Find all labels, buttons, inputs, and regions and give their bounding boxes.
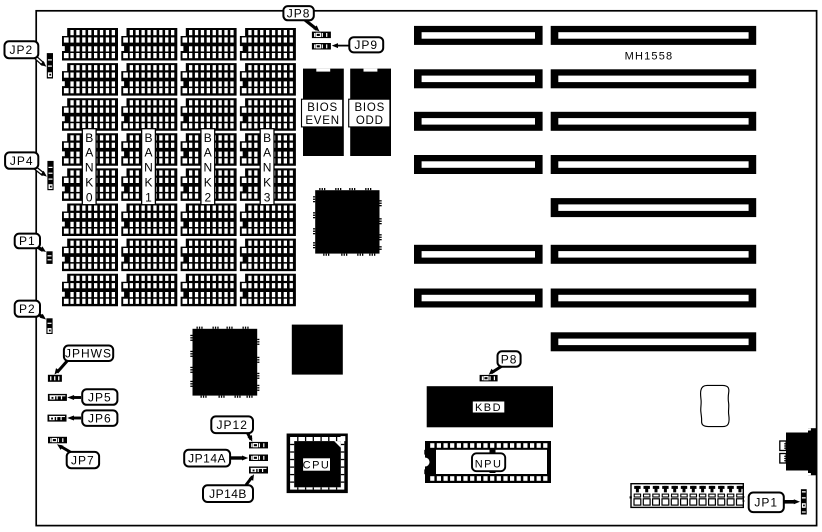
svg-text:N: N: [144, 161, 153, 175]
svg-text:A: A: [144, 146, 152, 160]
svg-text:JP14B: JP14B: [209, 487, 247, 501]
svg-text:JP4: JP4: [10, 154, 34, 168]
svg-text:JP6: JP6: [88, 411, 112, 425]
svg-text:B: B: [263, 131, 271, 145]
svg-text:EVEN: EVEN: [305, 115, 340, 127]
svg-text:ODD: ODD: [356, 115, 384, 127]
svg-text:B: B: [204, 131, 212, 145]
svg-text:0: 0: [86, 190, 93, 204]
svg-text:A: A: [263, 146, 271, 160]
svg-text:1: 1: [145, 190, 152, 204]
svg-text:N: N: [85, 161, 94, 175]
svg-text:KBD: KBD: [475, 402, 502, 414]
svg-text:JP8: JP8: [287, 7, 311, 21]
svg-text:JPHWS: JPHWS: [65, 347, 112, 361]
svg-text:K: K: [263, 176, 271, 190]
svg-text:P8: P8: [501, 352, 518, 366]
svg-text:BIOS: BIOS: [354, 102, 385, 114]
svg-text:A: A: [204, 146, 212, 160]
svg-text:B: B: [144, 131, 152, 145]
svg-text:CPU: CPU: [303, 459, 331, 471]
svg-text:JP5: JP5: [88, 390, 112, 404]
svg-text:MH1558: MH1558: [625, 50, 674, 62]
svg-text:N: N: [263, 161, 272, 175]
svg-text:JP14A: JP14A: [188, 452, 226, 466]
svg-text:JP2: JP2: [10, 43, 34, 57]
svg-text:NPU: NPU: [475, 458, 503, 470]
svg-text:JP9: JP9: [354, 38, 378, 52]
svg-text:B: B: [85, 131, 93, 145]
svg-text:K: K: [144, 176, 152, 190]
svg-text:JP12: JP12: [217, 418, 248, 432]
svg-text:P1: P1: [19, 234, 36, 248]
svg-text:JP1: JP1: [754, 496, 778, 510]
svg-text:N: N: [203, 161, 212, 175]
svg-text:JP7: JP7: [71, 453, 95, 467]
svg-text:3: 3: [264, 190, 271, 204]
svg-text:2: 2: [204, 190, 211, 204]
svg-text:BIOS: BIOS: [307, 102, 338, 114]
svg-text:K: K: [85, 176, 93, 190]
svg-text:P2: P2: [19, 302, 36, 316]
svg-text:K: K: [204, 176, 212, 190]
svg-text:A: A: [85, 146, 93, 160]
